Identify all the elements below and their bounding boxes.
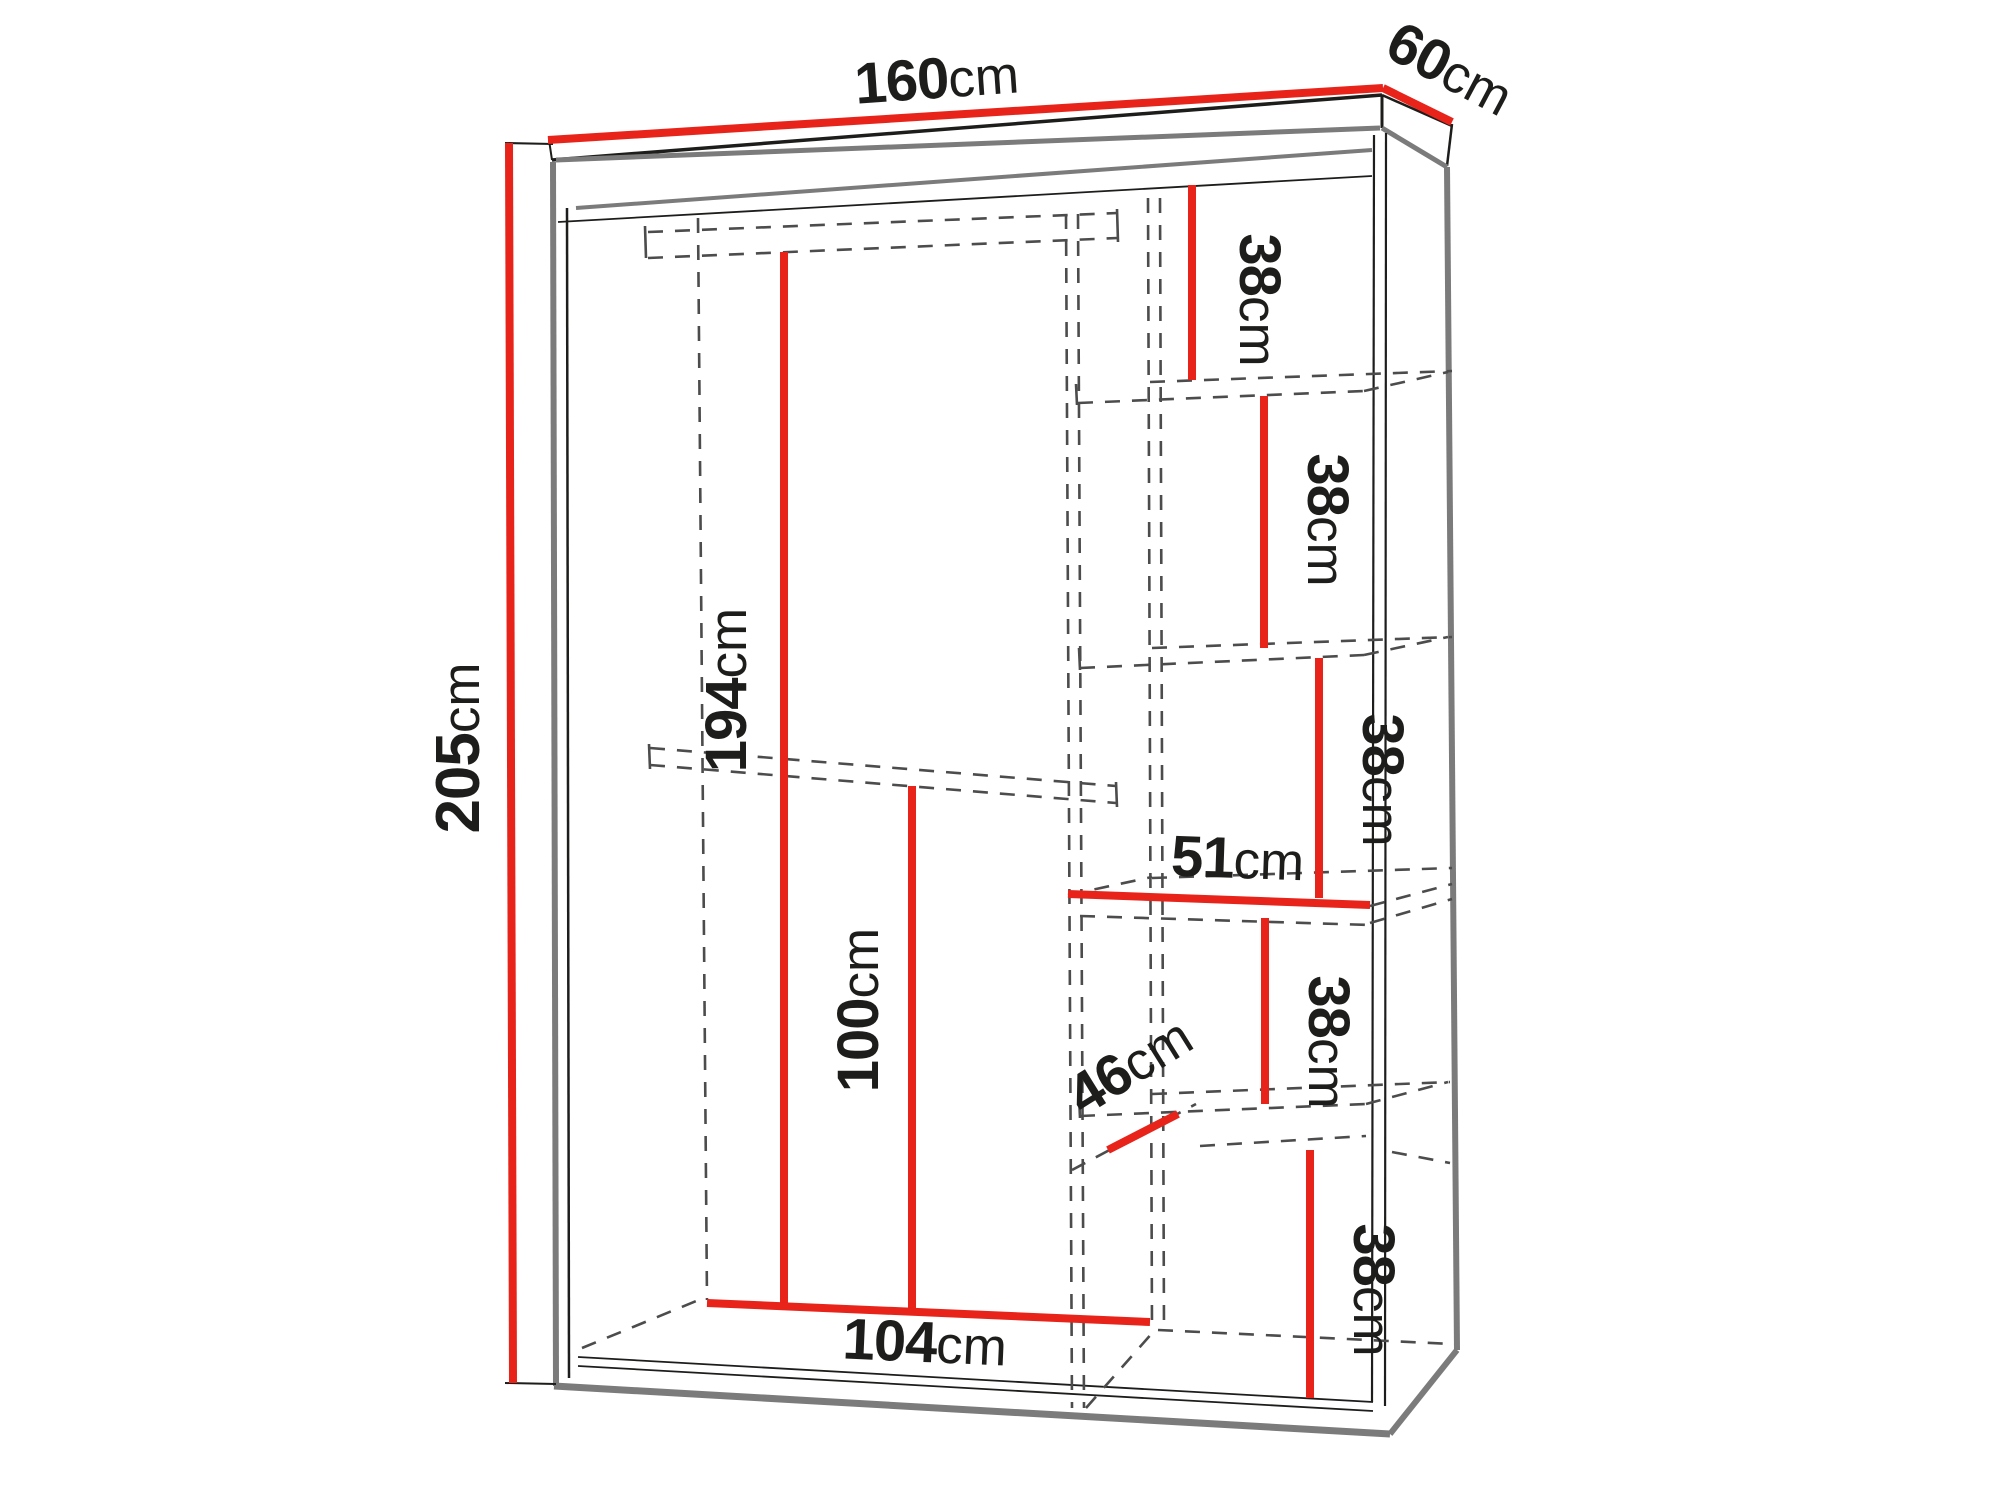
hanging-rod-left-cap: [645, 226, 646, 258]
front-left-inner-edge: [567, 208, 569, 1378]
label-lower-height-100: 100cm: [826, 928, 891, 1092]
label-shelf-width-51: 51cm: [1170, 824, 1305, 894]
diagram-canvas: 160cm 60cm 205cm 194cm 100cm 104cm 38cm …: [0, 0, 2000, 1500]
side-panel-top-edge: [1382, 128, 1447, 167]
left-mid-shelf-right-cap: [1116, 782, 1117, 807]
label-shelf-gap-4: 38cm: [1296, 975, 1361, 1108]
shelf2-left-cap: [1079, 648, 1080, 670]
floor-back-edge: [1158, 1330, 1452, 1344]
label-shelf-gap-5: 38cm: [1341, 1223, 1406, 1356]
wardrobe-dimension-diagram: 160cm 60cm 205cm 194cm 100cm 104cm 38cm …: [0, 0, 2000, 1500]
front-left-outer-edge: [553, 162, 556, 1386]
label-shelf-depth-46: 46cm: [1056, 1003, 1203, 1129]
label-shelf-gap-2: 38cm: [1295, 453, 1360, 586]
hanging-rod-bottom: [648, 238, 1118, 258]
shelf3-front-bottom: [1080, 916, 1370, 925]
shelf3-right-diagonal-1: [1370, 884, 1452, 906]
divider-back-line-2: [1160, 198, 1164, 1330]
right-outer-edge: [1447, 167, 1457, 1350]
shelf2-back: [1152, 637, 1452, 648]
shelf1-left-cap: [1076, 384, 1077, 405]
divider-front-line-1: [1066, 214, 1072, 1408]
divider-front-line-2: [1078, 214, 1084, 1408]
floor-left-depth-diagonal: [582, 1297, 706, 1348]
dimension-line-shelf-width-51: [1068, 894, 1370, 905]
dimension-labels: 160cm 60cm 205cm 194cm 100cm 104cm 38cm …: [424, 9, 1524, 1379]
label-shelf-gap-3: 38cm: [1350, 713, 1415, 846]
left-mid-shelf-left-cap: [649, 744, 650, 769]
right-back-corner-edge: [1447, 124, 1452, 166]
shelf1-front: [1078, 391, 1364, 403]
label-width-160: 160cm: [852, 40, 1021, 116]
label-depth-60: 60cm: [1376, 9, 1524, 129]
label-height-205: 205cm: [424, 662, 493, 833]
side-bottom-edge: [1390, 1350, 1457, 1434]
divider-back-line-1: [1148, 198, 1152, 1330]
hanging-rod-right-cap: [1117, 209, 1118, 242]
hanging-rod-top: [648, 213, 1118, 232]
side-panel-dash-hint: [1392, 1152, 1450, 1163]
dimension-lines: [505, 88, 1452, 1398]
label-interior-height-194: 194cm: [694, 608, 759, 772]
height-dim-bottom-tick: [505, 1383, 556, 1384]
dimension-line-shelf-depth-46: [1108, 1114, 1178, 1150]
label-shelf-gap-1: 38cm: [1227, 233, 1292, 366]
label-interior-width-104: 104cm: [841, 1306, 1008, 1378]
shelf4-bottom-hint: [1200, 1136, 1366, 1146]
dimension-line-height-205: [509, 143, 513, 1383]
front-bottom-edge: [554, 1386, 1390, 1434]
